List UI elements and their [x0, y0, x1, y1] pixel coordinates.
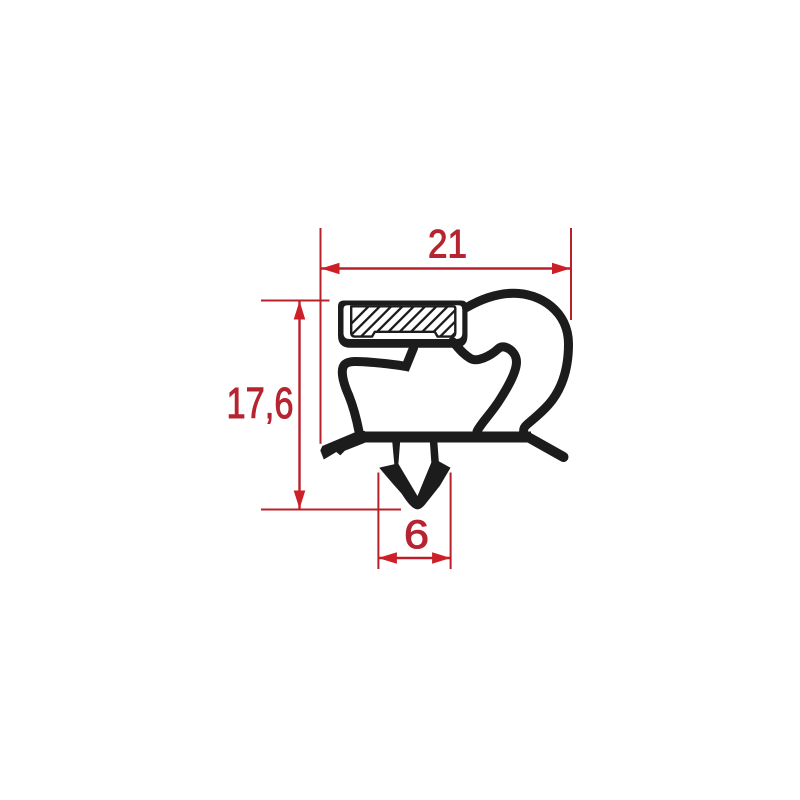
- svg-text:21: 21: [428, 223, 467, 267]
- svg-text:17,6: 17,6: [227, 379, 294, 428]
- svg-text:6: 6: [404, 513, 429, 557]
